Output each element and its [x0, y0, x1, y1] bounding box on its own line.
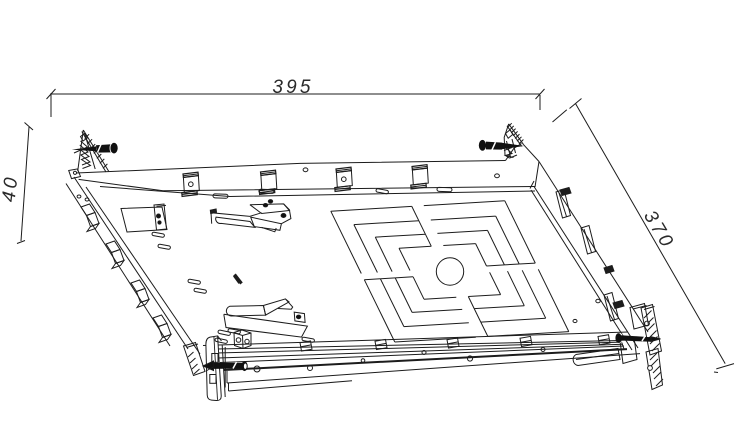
svg-text:395: 395 [272, 77, 313, 98]
svg-text:40: 40 [0, 173, 23, 203]
svg-text:370: 370 [639, 207, 678, 253]
